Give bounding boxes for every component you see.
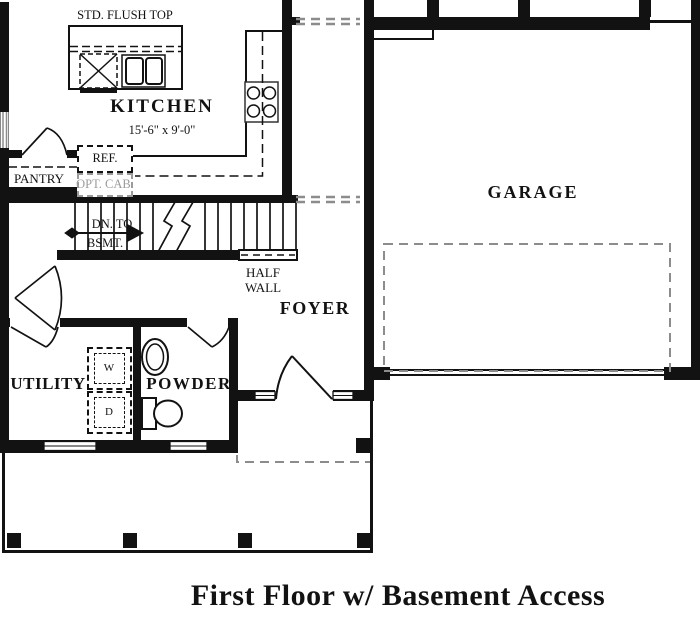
half-wall-label-line1: HALF bbox=[246, 266, 280, 279]
room-label-powder: POWDER bbox=[146, 375, 232, 392]
dishwasher-icon bbox=[80, 54, 117, 93]
room-label-kitchen: KITCHEN bbox=[110, 97, 214, 116]
sink-icon bbox=[142, 339, 168, 375]
window-left-wall bbox=[1, 112, 9, 148]
island-note-label: STD. FLUSH TOP bbox=[77, 9, 173, 22]
floor-plan: STD. FLUSH TOP KITCHEN 15'-6" x 9'-0" PA… bbox=[0, 0, 700, 621]
porch-dashed-line bbox=[237, 455, 370, 462]
half-wall-label-line2: WALL bbox=[245, 281, 281, 294]
washer-label: W bbox=[104, 363, 114, 374]
front-door-swing bbox=[276, 356, 332, 399]
plan-title: First Floor w/ Basement Access bbox=[191, 581, 605, 611]
stairs-note-line2: BSMT. bbox=[87, 237, 123, 250]
stair-break-lines bbox=[158, 197, 196, 252]
dryer-label: D bbox=[105, 407, 113, 418]
room-label-foyer: FOYER bbox=[280, 299, 351, 317]
window-powder bbox=[170, 442, 207, 451]
utility-door-swing bbox=[11, 327, 58, 347]
stairs-note-line1: DN. TO bbox=[92, 218, 133, 231]
optional-cabinet-label: OPT. CAB. bbox=[76, 178, 134, 191]
cased-opening-dashes bbox=[296, 19, 360, 202]
room-label-garage: GARAGE bbox=[487, 183, 578, 201]
room-label-pantry: PANTRY bbox=[14, 172, 64, 185]
window-utility bbox=[44, 442, 96, 451]
pantry-door-swing bbox=[22, 128, 67, 155]
kitchen-dimensions-label: 15'-6" x 9'-0" bbox=[129, 124, 196, 137]
island-flush-top-lines bbox=[70, 47, 181, 52]
basement-landing-door-swing bbox=[15, 266, 62, 330]
double-sink-icon bbox=[122, 55, 165, 87]
room-label-utility: UTILITY bbox=[10, 375, 85, 392]
toilet-icon bbox=[142, 398, 182, 429]
front-door-sidelite bbox=[255, 392, 353, 400]
garage-door-dashed-area bbox=[384, 244, 670, 371]
range-icon bbox=[245, 82, 278, 122]
powder-door-swing bbox=[188, 327, 229, 347]
refrigerator-label: REF. bbox=[92, 152, 117, 165]
